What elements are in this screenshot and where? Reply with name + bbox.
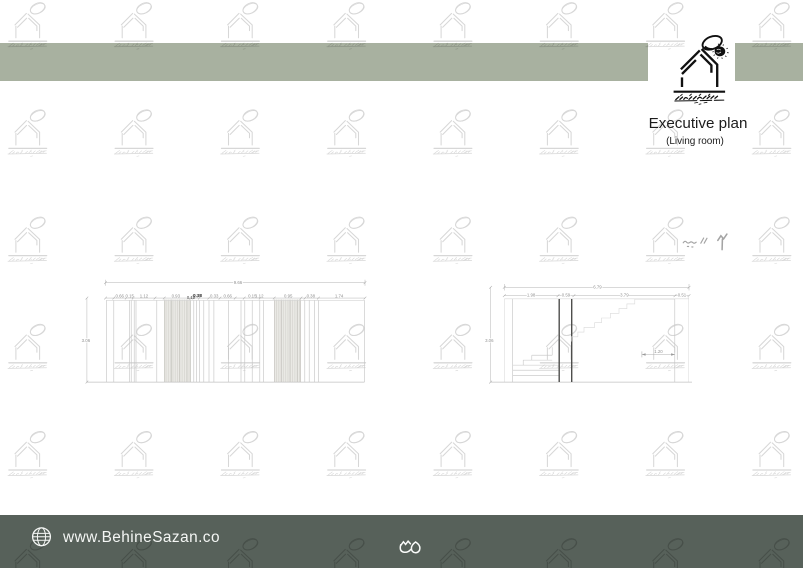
svg-text:0.95: 0.95 [284, 293, 293, 298]
svg-text:0.66: 0.66 [223, 293, 232, 298]
svg-text:0.38: 0.38 [193, 293, 202, 298]
svg-text:1.12: 1.12 [140, 293, 149, 298]
svg-text:3.79: 3.79 [620, 293, 629, 298]
svg-text:3.06: 3.06 [82, 338, 91, 343]
svg-text:1.98: 1.98 [527, 293, 536, 298]
svg-text:0.51: 0.51 [678, 293, 687, 298]
svg-text:0.66: 0.66 [115, 293, 124, 298]
svg-text:1.20: 1.20 [654, 349, 663, 354]
svg-text:0.15: 0.15 [125, 293, 134, 298]
svg-text:9.66: 9.66 [234, 280, 243, 285]
svg-text:6.79: 6.79 [593, 284, 602, 289]
svg-text:1.12: 1.12 [255, 293, 264, 298]
svg-text:1.74: 1.74 [335, 293, 344, 298]
svg-text:0.93: 0.93 [172, 293, 181, 298]
svg-text:0.59: 0.59 [562, 293, 571, 298]
svg-text:0.33: 0.33 [210, 293, 219, 298]
svg-text:0.38: 0.38 [307, 293, 316, 298]
svg-text:3.06: 3.06 [485, 338, 494, 343]
